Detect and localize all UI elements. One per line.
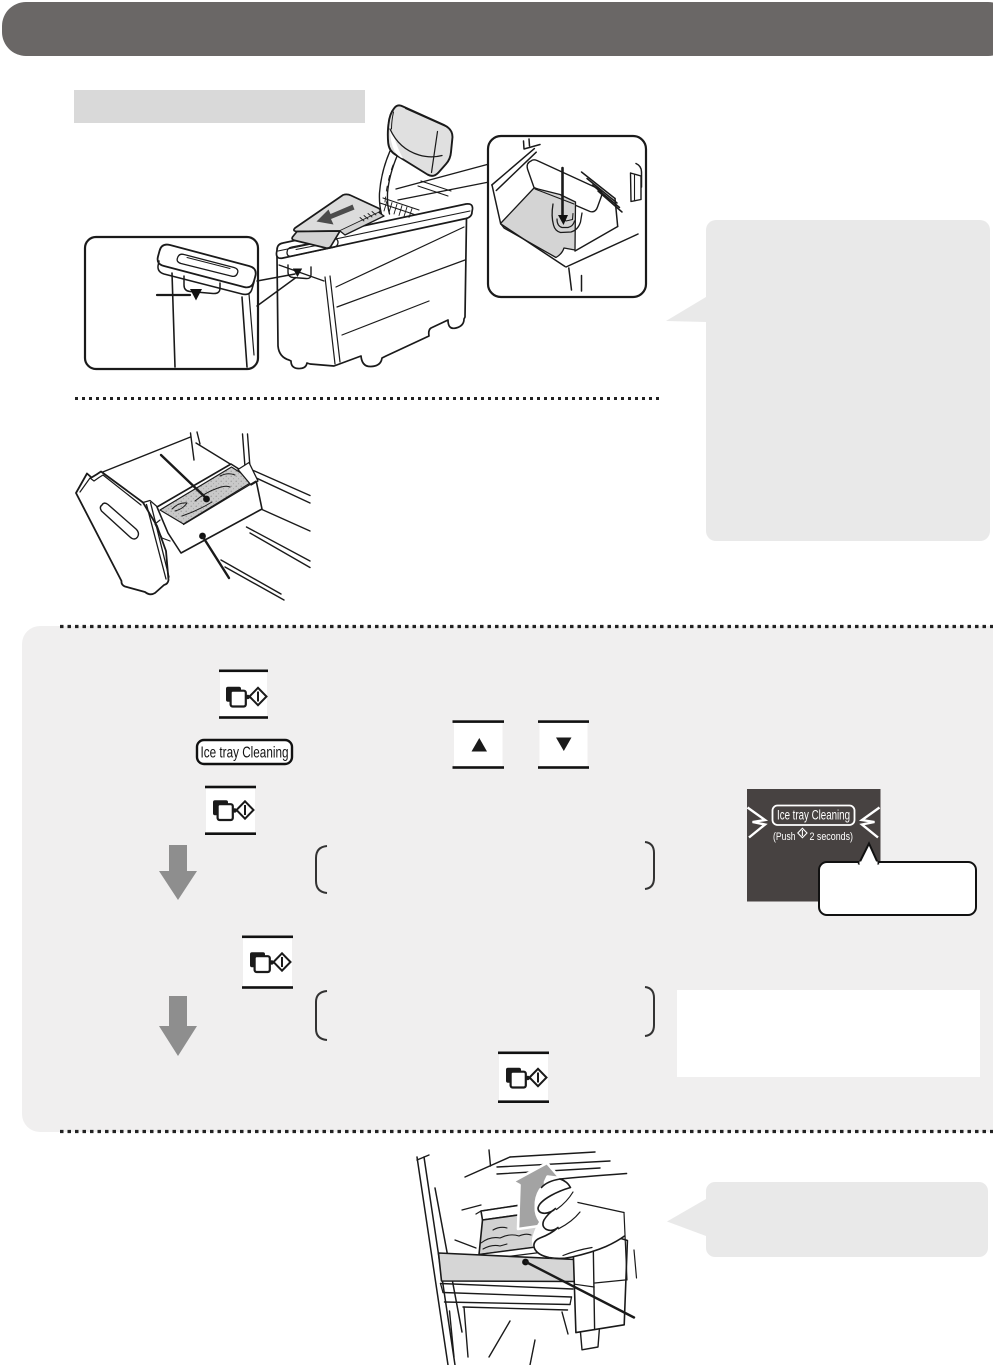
svg-text:Ice tray Cleaning: Ice tray Cleaning (777, 808, 850, 823)
svg-text:Ice tray Cleaning: Ice tray Cleaning (201, 745, 289, 762)
svg-text:(Push: (Push (773, 831, 796, 843)
svg-text:2 seconds): 2 seconds) (810, 831, 854, 843)
